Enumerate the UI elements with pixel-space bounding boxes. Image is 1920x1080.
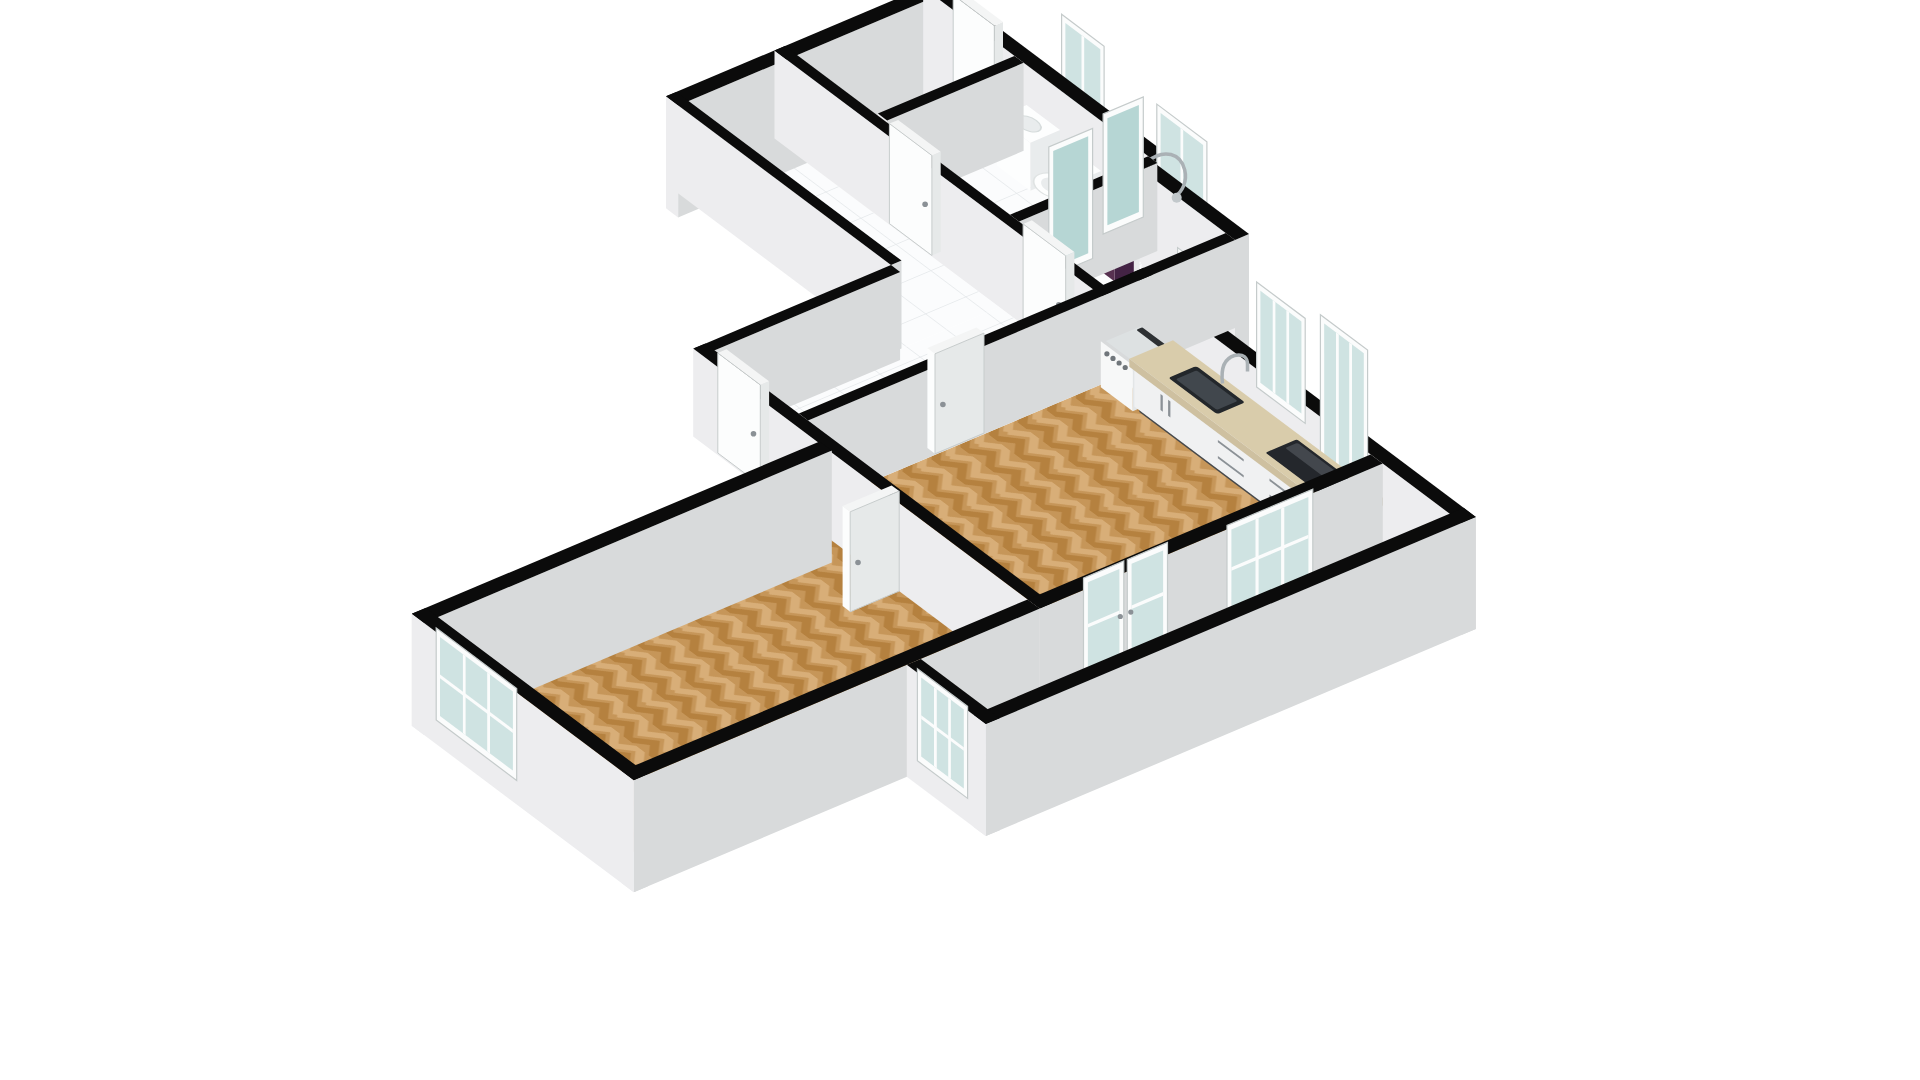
bathroom-door-side-se [932, 152, 941, 256]
washing-machine-knob-icon [1117, 360, 1122, 365]
kitchen-window-3-mullion [1336, 333, 1339, 472]
kitchen-window-2-mullion [1273, 300, 1276, 394]
floorplan-canvas [0, 0, 1920, 1080]
bathroom-side-window-upper-glass [1107, 105, 1139, 225]
french-door-handle-icon [1118, 614, 1123, 619]
hall-kitchen-door-side-sw [927, 348, 935, 454]
bathroom-door-handle-icon [922, 202, 928, 208]
cabinet-handle [1161, 394, 1163, 412]
hall-kitchen-door-handle-icon [940, 402, 946, 408]
washing-machine-knob-icon [1123, 365, 1128, 370]
cabinet-handle [1168, 400, 1170, 418]
exterior-wall-balcony-southwest-side-se [986, 718, 1000, 836]
floorplan-3d-render [0, 0, 1920, 1080]
bedroom-living-door-open-side-sw [843, 506, 851, 612]
kitchen-window-2-mullion [1286, 310, 1289, 404]
washing-machine-knob-icon [1110, 356, 1115, 361]
washing-machine-knob-icon [1104, 351, 1109, 356]
shower-head-nozzle-icon [1172, 193, 1182, 203]
exterior-wall-north-shower-side-se [1235, 234, 1249, 352]
inner-hall-bedroom-door-handle-icon [751, 431, 757, 437]
exterior-wall-bedroom-southwest-side-se [634, 774, 648, 892]
bedroom-living-door-open-handle-icon [855, 560, 861, 566]
kitchen-window-3-mullion [1349, 342, 1352, 481]
french-door-handle-icon [1128, 610, 1133, 615]
